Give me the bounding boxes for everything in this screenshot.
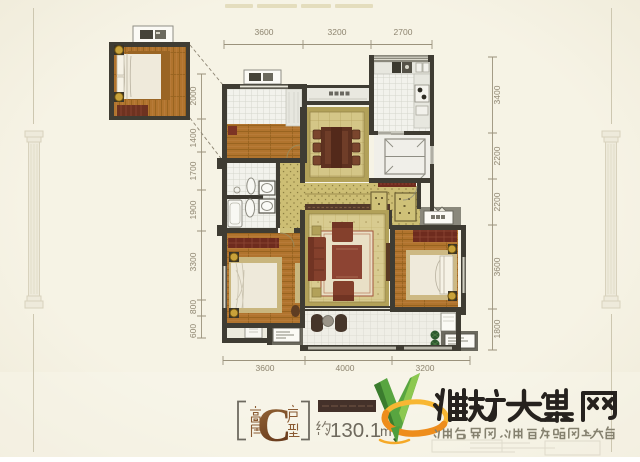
svg-text:3600: 3600 — [492, 257, 502, 276]
svg-text:1400: 1400 — [188, 128, 198, 147]
svg-text:130.1: 130.1 — [330, 419, 381, 442]
svg-text:2700: 2700 — [394, 27, 413, 37]
svg-text:1700: 1700 — [188, 161, 198, 180]
svg-text:2200: 2200 — [492, 192, 502, 211]
svg-text:1800: 1800 — [492, 319, 502, 338]
svg-text:600: 600 — [188, 324, 198, 338]
svg-text:C: C — [257, 399, 292, 452]
svg-text:2200: 2200 — [492, 146, 502, 165]
svg-text:3600: 3600 — [255, 27, 274, 37]
svg-text:3600: 3600 — [256, 363, 275, 373]
svg-text:4000: 4000 — [336, 363, 355, 373]
svg-text:800: 800 — [188, 300, 198, 314]
svg-text:3300: 3300 — [188, 252, 198, 271]
svg-text:3200: 3200 — [328, 27, 347, 37]
svg-text:3400: 3400 — [492, 85, 502, 104]
svg-text:1900: 1900 — [188, 200, 198, 219]
svg-text:3200: 3200 — [416, 363, 435, 373]
